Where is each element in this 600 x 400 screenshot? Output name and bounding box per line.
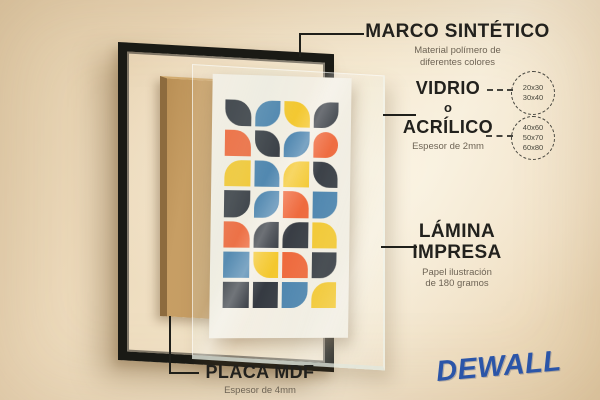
size-options-circle-1: 20x3030x40 bbox=[511, 71, 555, 115]
connector-marco-v bbox=[299, 33, 301, 57]
vidrio-or: o bbox=[398, 101, 498, 115]
vidrio-title: VIDRIO bbox=[398, 78, 498, 99]
callout-lamina-impresa: LÁMINA IMPRESA Papel ilustración de 180 … bbox=[398, 221, 516, 290]
size-option: 30x40 bbox=[523, 93, 543, 103]
lamina-title-line2: IMPRESA bbox=[398, 242, 516, 263]
lamina-title-line1: LÁMINA bbox=[398, 221, 516, 242]
marco-desc-line2: diferentes colores bbox=[360, 57, 555, 69]
vidrio-desc: Espesor de 2mm bbox=[398, 141, 498, 153]
callout-placa-mdf: PLACA MDF Espesor de 4mm bbox=[201, 362, 319, 397]
size-option: 40x60 bbox=[523, 123, 543, 133]
size-option: 20x30 bbox=[523, 83, 543, 93]
marco-title: MARCO SINTÉTICO bbox=[360, 21, 555, 42]
connector-placa-h bbox=[169, 372, 199, 374]
callout-marco-sintetico: MARCO SINTÉTICO Material polímero de dif… bbox=[360, 21, 555, 69]
lamina-desc-line1: Papel ilustración bbox=[398, 267, 516, 279]
placa-title: PLACA MDF bbox=[201, 362, 319, 382]
size-options-circle-2: 40x6050x7060x80 bbox=[511, 116, 555, 160]
connector-marco-h bbox=[299, 33, 364, 35]
lamina-desc-line2: de 180 gramos bbox=[398, 278, 516, 290]
size-option: 50x70 bbox=[523, 133, 543, 143]
callout-vidrio-acrilico: VIDRIO o ACRÍLICO Espesor de 2mm bbox=[398, 78, 498, 153]
size-option: 60x80 bbox=[523, 143, 543, 153]
acrilico-title: ACRÍLICO bbox=[398, 117, 498, 138]
marco-desc-line1: Material polímero de bbox=[360, 45, 555, 57]
glass-pane bbox=[192, 64, 385, 370]
connector-placa-v bbox=[169, 316, 171, 374]
infographic-frame-components: MARCO SINTÉTICO Material polímero de dif… bbox=[0, 0, 600, 400]
placa-desc: Espesor de 4mm bbox=[201, 385, 319, 397]
